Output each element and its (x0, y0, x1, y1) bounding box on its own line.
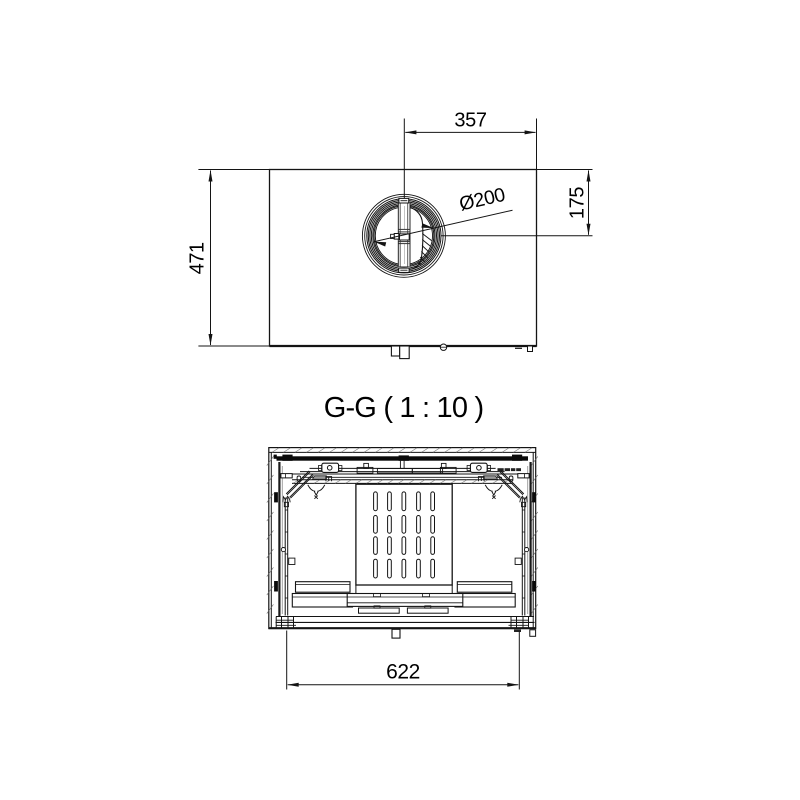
svg-text:622: 622 (386, 660, 420, 683)
svg-text:357: 357 (454, 109, 486, 131)
svg-text:Ø200: Ø200 (457, 184, 507, 216)
svg-text:G-G ( 1 : 10 ): G-G ( 1 : 10 ) (324, 392, 484, 424)
svg-text:175: 175 (567, 187, 589, 219)
svg-text:471: 471 (187, 242, 209, 274)
